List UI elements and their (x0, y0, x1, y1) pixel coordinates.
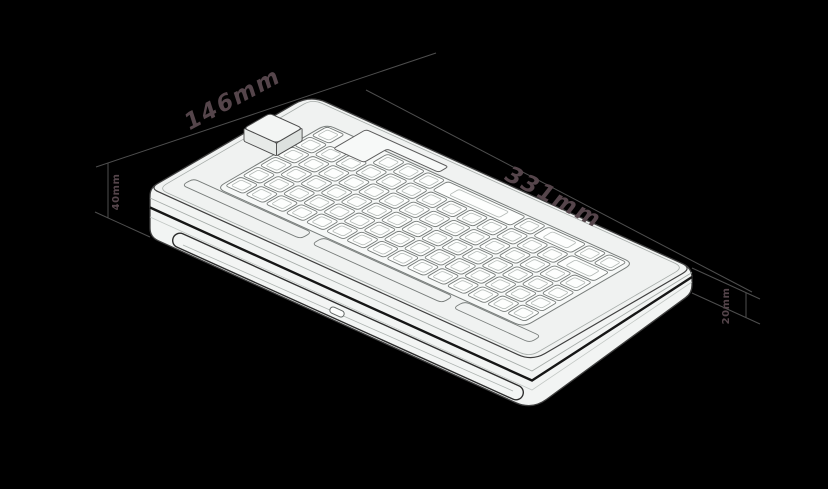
height-front-dimension-label: 20mm (721, 288, 732, 325)
keyboard-dimension-diagram: 146mm 331mm 40mm 20mm (0, 0, 828, 489)
keyboard-case (150, 99, 692, 406)
height-back-dimension-label: 40mm (111, 174, 122, 211)
diagram-stage: 146mm 331mm 40mm 20mm (0, 0, 828, 489)
height-back-extension-line (95, 212, 150, 237)
